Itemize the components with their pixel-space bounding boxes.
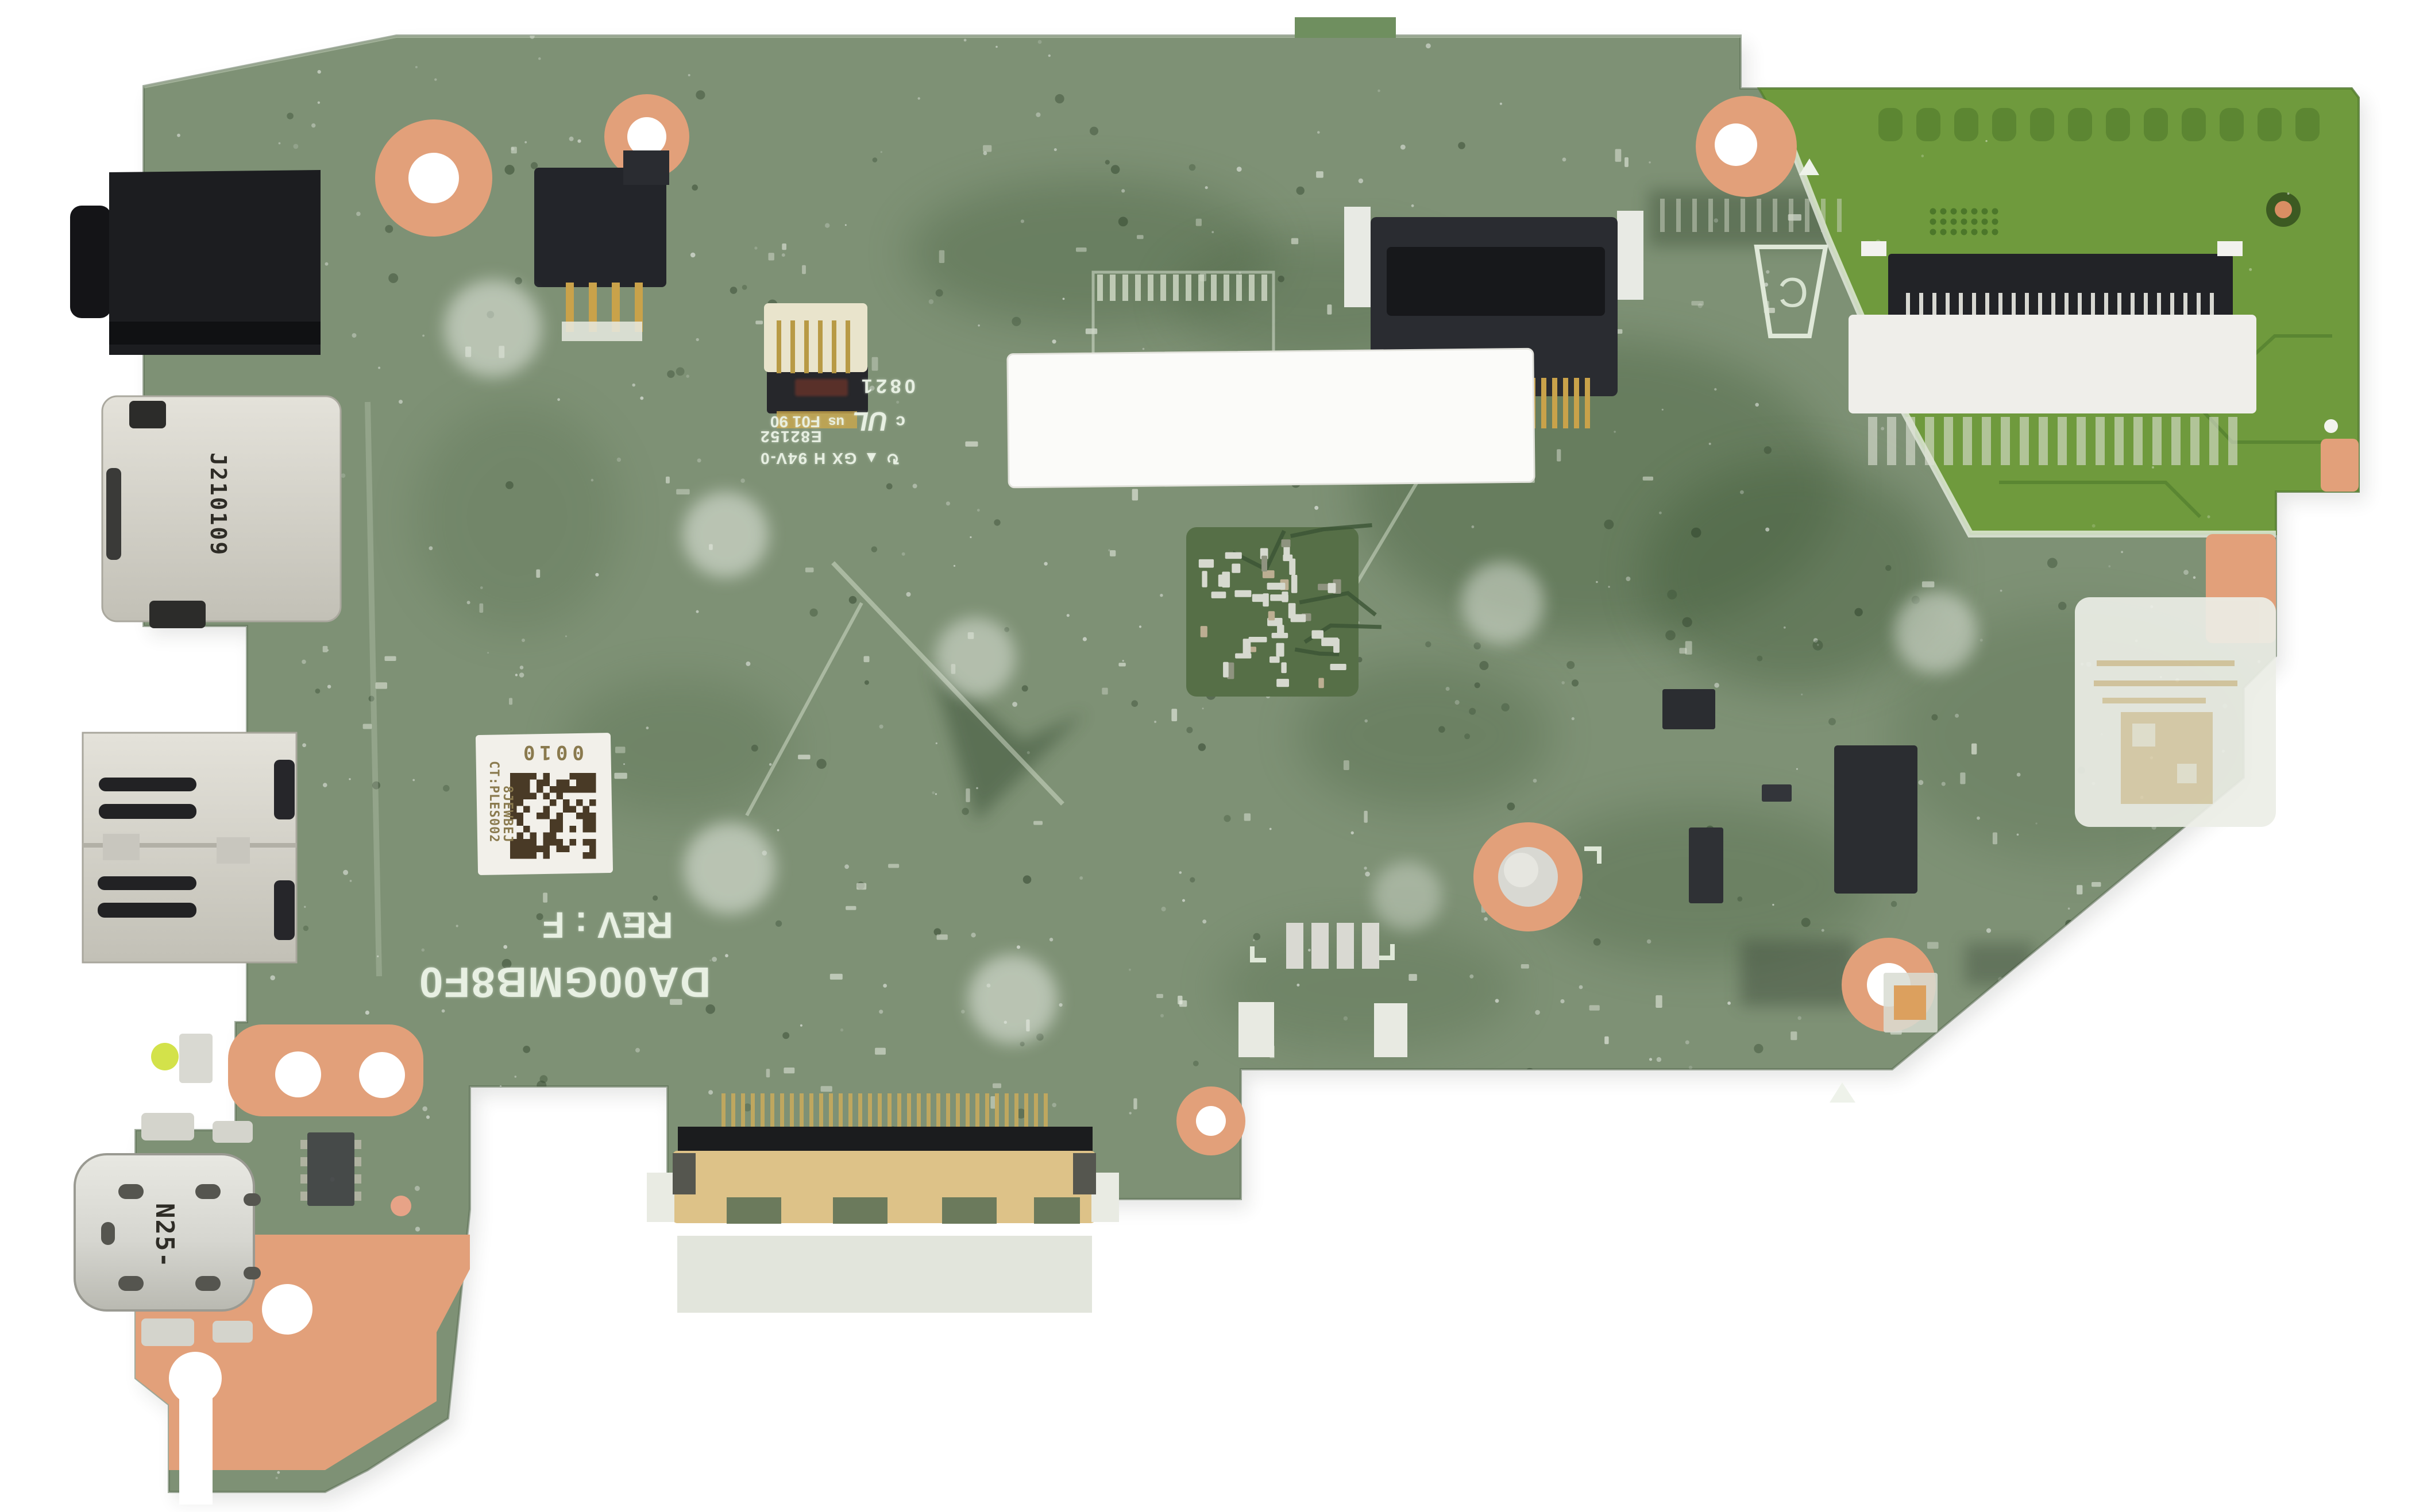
board-graphic: C bbox=[0, 0, 2431, 1512]
label-line2: 8JEWBEJ bbox=[500, 786, 515, 843]
board-model: DA00GMB8F0 bbox=[418, 958, 711, 1007]
pad bbox=[1238, 1002, 1274, 1057]
triangle-mark bbox=[1830, 1082, 1855, 1103]
ul-mark-us: us bbox=[828, 413, 844, 430]
copper-pad-dual-hole bbox=[228, 1024, 423, 1116]
ul-mark-c: c bbox=[896, 412, 905, 431]
usb-c-designator: N25- bbox=[150, 1203, 179, 1269]
soc-decoupling-cutout bbox=[1186, 525, 1382, 697]
rating-text: GX H 94V-0 bbox=[759, 450, 856, 467]
label-serial: 0010 bbox=[519, 741, 584, 764]
soic-chip bbox=[300, 1132, 361, 1206]
blank-label bbox=[1008, 349, 1534, 488]
ic-chip bbox=[1662, 689, 1715, 729]
copper-pad bbox=[2321, 439, 2359, 492]
power-led bbox=[151, 1034, 213, 1083]
usb-a-port bbox=[83, 733, 296, 962]
audio-jack bbox=[70, 170, 321, 355]
flammability-rating: ↻ ▲ GX H 94V-0 bbox=[759, 449, 900, 468]
trapezoid-letter: C bbox=[1778, 269, 1808, 315]
mounting-hole bbox=[375, 119, 492, 237]
red-stamp bbox=[795, 379, 848, 396]
via-copper bbox=[2275, 201, 2292, 218]
date-code: 0821 bbox=[858, 374, 916, 397]
edge-tab bbox=[1295, 17, 1396, 38]
screw-pad bbox=[1473, 822, 1583, 931]
ul-mark-core: UL bbox=[852, 406, 887, 437]
ic-chip bbox=[1689, 827, 1723, 903]
pad bbox=[1374, 1003, 1407, 1057]
motherboard-photo: C bbox=[0, 0, 2431, 1512]
rating-symbols: ↻ ▲ bbox=[862, 450, 900, 467]
board-revision: REV : F bbox=[542, 904, 673, 946]
ic-orange-pad bbox=[1884, 973, 1938, 1033]
ic-chip bbox=[1834, 745, 1917, 894]
via-hole bbox=[2324, 419, 2338, 433]
mounting-hole bbox=[1696, 96, 1797, 197]
edge-half-hole bbox=[1176, 1086, 1245, 1155]
label-ct-code: CT:PLES002 bbox=[487, 761, 501, 842]
sd-slot-designator: J210109 bbox=[206, 453, 231, 556]
ic-chip bbox=[1762, 784, 1792, 802]
side-label bbox=[2075, 597, 2276, 827]
ul-file-number: E82152 bbox=[759, 427, 822, 446]
